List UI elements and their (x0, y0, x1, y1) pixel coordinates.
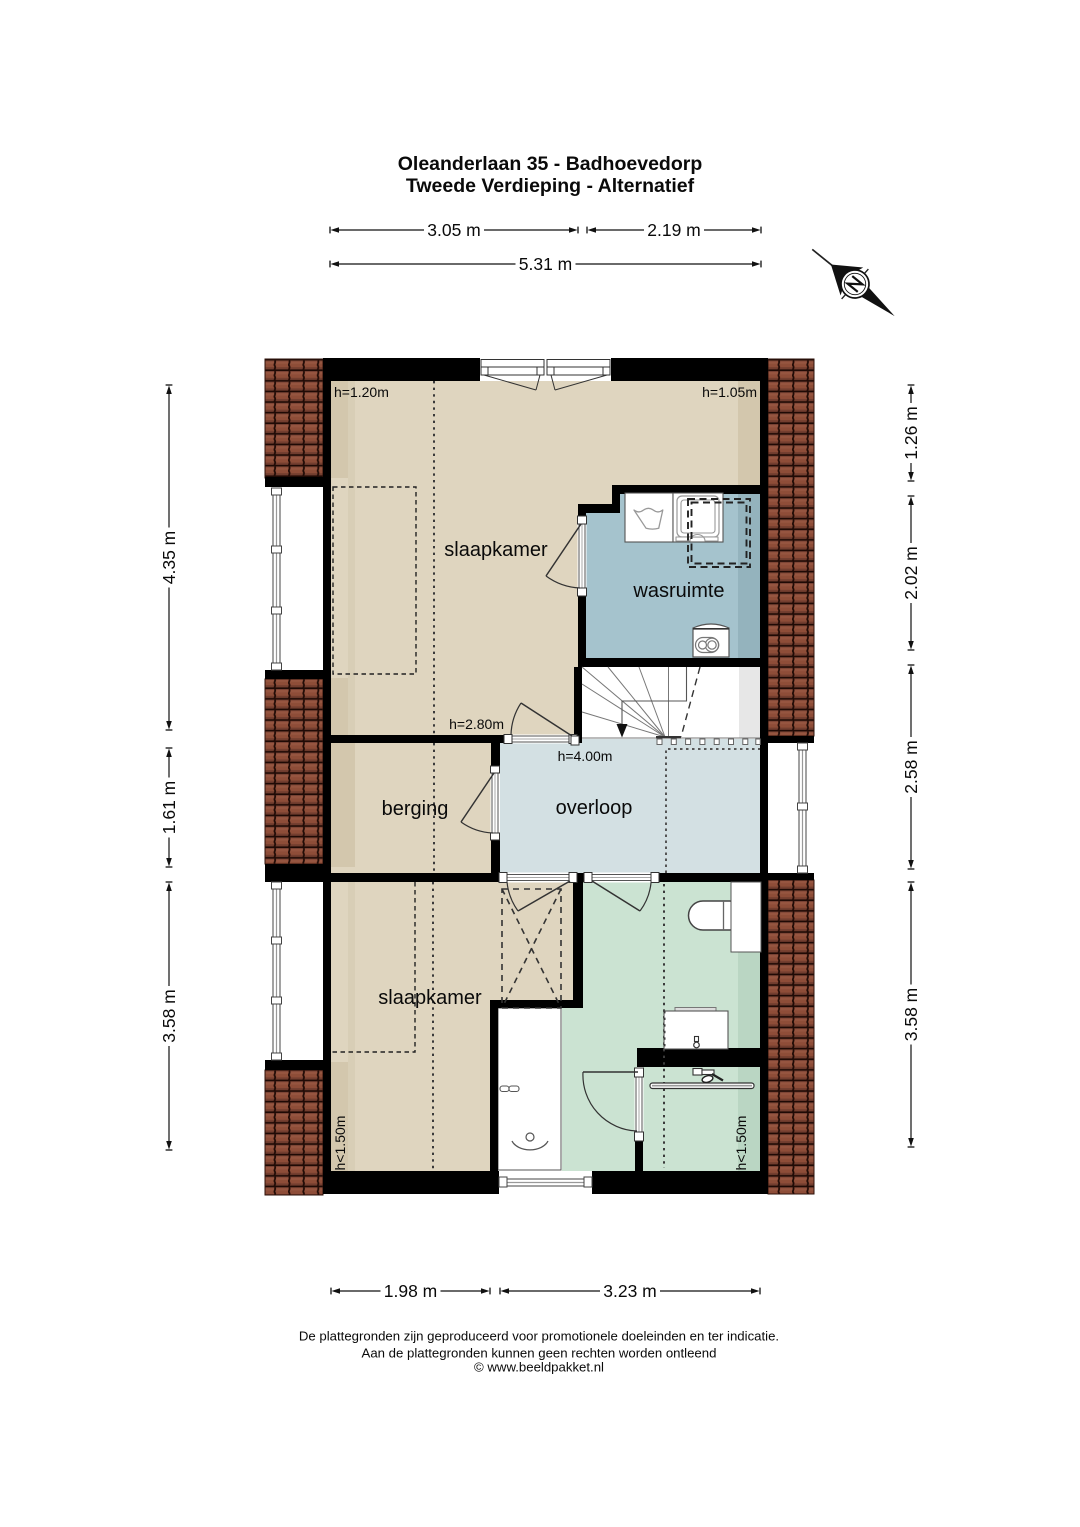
svg-text:1.26 m: 1.26 m (901, 406, 921, 460)
svg-text:h=1.05m: h=1.05m (702, 384, 757, 400)
svg-text:3.23 m: 3.23 m (603, 1281, 657, 1301)
svg-text:h=2.80m: h=2.80m (449, 716, 504, 732)
svg-text:berging: berging (382, 798, 449, 820)
svg-text:wasruimte: wasruimte (632, 580, 724, 602)
svg-text:slaapkamer: slaapkamer (444, 539, 548, 561)
svg-text:2.02 m: 2.02 m (901, 546, 921, 600)
svg-text:h=1.20m: h=1.20m (334, 384, 389, 400)
svg-text:3.58 m: 3.58 m (159, 989, 179, 1043)
svg-text:De plattegronden zijn geproduc: De plattegronden zijn geproduceerd voor … (299, 1329, 779, 1344)
svg-text:1.98 m: 1.98 m (384, 1281, 438, 1301)
svg-text:Tweede Verdieping - Alternatie: Tweede Verdieping - Alternatief (406, 175, 695, 197)
svg-text:5.31 m: 5.31 m (519, 254, 573, 274)
svg-text:3.05 m: 3.05 m (427, 220, 481, 240)
svg-text:Oleanderlaan 35 - Badhoevedorp: Oleanderlaan 35 - Badhoevedorp (398, 153, 703, 175)
svg-text:4.35 m: 4.35 m (159, 531, 179, 585)
svg-text:overloop: overloop (556, 797, 633, 819)
svg-text:h<1.50m: h<1.50m (332, 1116, 348, 1171)
svg-text:© www.beeldpakket.nl: © www.beeldpakket.nl (474, 1360, 604, 1375)
svg-text:h<1.50m: h<1.50m (733, 1116, 749, 1171)
svg-text:2.58 m: 2.58 m (901, 740, 921, 794)
svg-text:3.58 m: 3.58 m (901, 988, 921, 1042)
svg-text:1.61 m: 1.61 m (159, 781, 179, 835)
svg-text:h=4.00m: h=4.00m (558, 748, 613, 764)
svg-text:2.19 m: 2.19 m (647, 220, 701, 240)
svg-text:slaapkamer: slaapkamer (378, 987, 482, 1009)
svg-text:Aan de plattegronden kunnen ge: Aan de plattegronden kunnen geen rechten… (362, 1346, 717, 1361)
